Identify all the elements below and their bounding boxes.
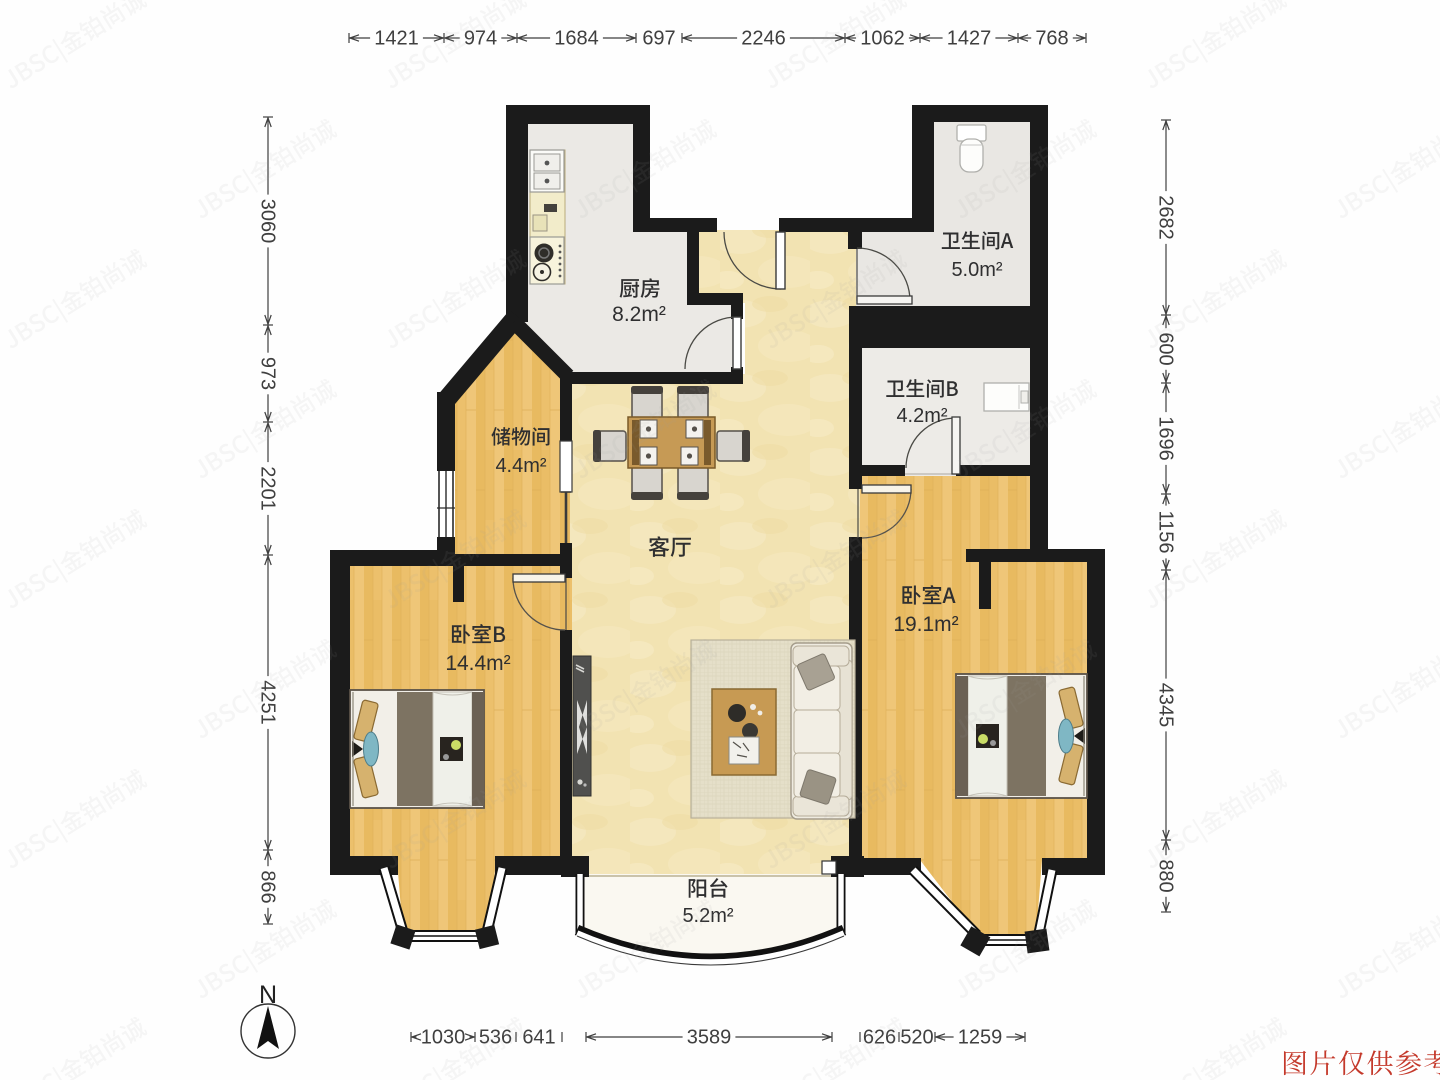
svg-text:768: 768: [1035, 28, 1068, 50]
svg-text:8.2m²: 8.2m²: [612, 303, 666, 326]
svg-text:1062: 1062: [860, 28, 905, 50]
svg-text:3060: 3060: [257, 199, 279, 244]
svg-text:974: 974: [464, 28, 497, 50]
svg-text:1421: 1421: [374, 28, 419, 50]
svg-text:697: 697: [642, 28, 675, 50]
svg-text:1030: 1030: [421, 1027, 466, 1049]
svg-text:14.4m²: 14.4m²: [445, 652, 510, 675]
svg-text:600: 600: [1155, 332, 1177, 365]
svg-text:19.1m²: 19.1m²: [893, 613, 958, 636]
svg-text:1427: 1427: [947, 28, 992, 50]
svg-text:5.0m²: 5.0m²: [951, 259, 1002, 281]
svg-text:641: 641: [522, 1027, 555, 1049]
svg-text:866: 866: [257, 870, 279, 903]
svg-text:973: 973: [257, 357, 279, 390]
svg-text:2246: 2246: [741, 28, 786, 50]
svg-text:4345: 4345: [1155, 683, 1177, 728]
svg-text:1684: 1684: [554, 28, 599, 50]
svg-text:2682: 2682: [1155, 195, 1177, 240]
svg-text:4.4m²: 4.4m²: [495, 455, 546, 477]
svg-text:3589: 3589: [687, 1027, 732, 1049]
svg-text:520: 520: [900, 1027, 933, 1049]
svg-text:1259: 1259: [958, 1027, 1003, 1049]
svg-text:1156: 1156: [1155, 510, 1177, 553]
svg-text:2201: 2201: [257, 466, 279, 511]
svg-text:1696: 1696: [1155, 416, 1177, 461]
svg-text:N: N: [259, 981, 277, 1009]
svg-text:4.2m²: 4.2m²: [896, 405, 947, 427]
